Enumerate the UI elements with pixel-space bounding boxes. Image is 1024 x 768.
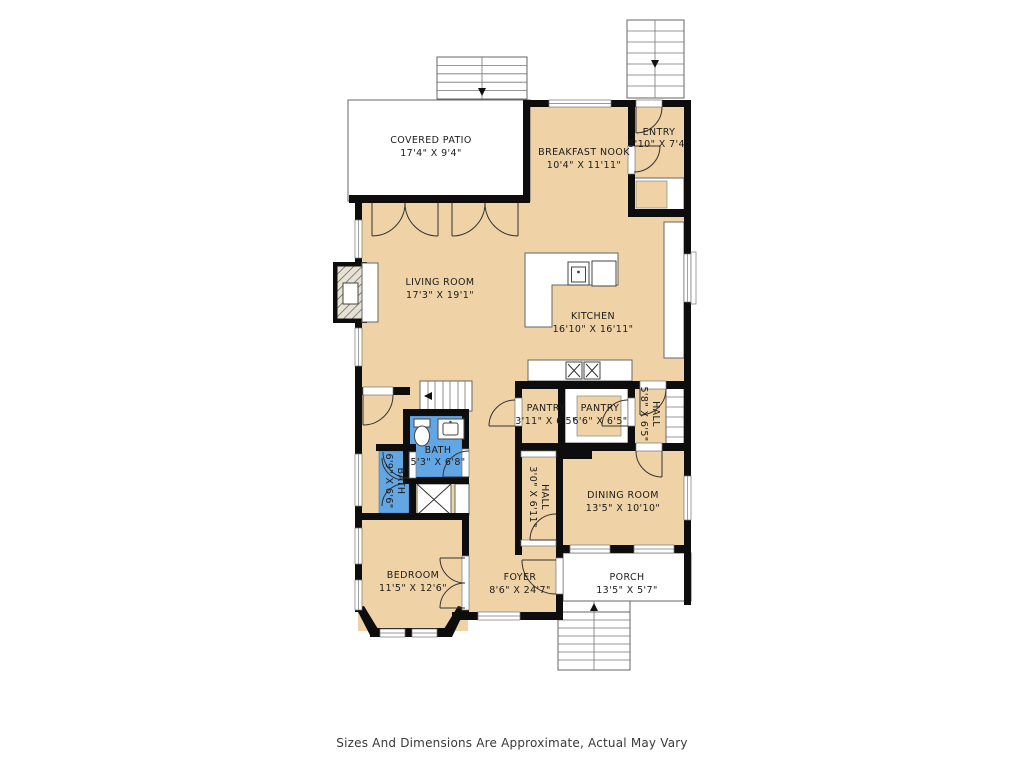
cased-opening [521, 451, 556, 457]
door-opening [363, 387, 393, 395]
hall-upper-dims: 5'8" X 6'5" [638, 386, 649, 441]
patio-stairs [437, 57, 527, 99]
floor-plan-drawing: COVERED PATIO 17'4" X 9'4" BREAKFAST NOO… [0, 0, 1024, 768]
cased-opening [521, 540, 556, 546]
dining-room-dims: 13'5" X 10'10" [586, 503, 660, 514]
window [684, 476, 691, 520]
sink-vanity-icon [438, 419, 464, 439]
entry-closet-shelf [636, 181, 667, 208]
interior-stairs [420, 381, 472, 411]
foyer-label: FOYER [504, 572, 537, 583]
door-opening [628, 398, 635, 426]
dining-room-label: DINING ROOM [587, 490, 659, 501]
window [412, 629, 437, 637]
window [684, 252, 696, 304]
kitchen-side-counter [664, 222, 684, 358]
pantry-left-label: PANTRY [527, 403, 566, 414]
wall-oven-icon [592, 261, 616, 286]
faucet-icon [577, 271, 580, 274]
entry-dims: 5'10" X 7'4" [628, 139, 690, 150]
fireplace-icon [333, 262, 378, 323]
hall-upper-label: HALL [650, 401, 661, 427]
foyer-dims: 8'6" X 24'7" [489, 585, 551, 596]
front-door-opening [556, 558, 563, 594]
small-closet [455, 484, 469, 515]
bedroom-label: BEDROOM [387, 570, 439, 581]
covered-patio-label: COVERED PATIO [390, 135, 472, 146]
porch-label: PORCH [609, 572, 644, 583]
disclaimer-caption: Sizes And Dimensions Are Approximate, Ac… [336, 736, 687, 750]
covered-patio-dims: 17'4" X 9'4" [400, 148, 462, 159]
floor-plan-page: COVERED PATIO 17'4" X 9'4" BREAKFAST NOO… [0, 0, 1024, 768]
window [355, 328, 362, 366]
porch-structure [558, 553, 691, 670]
window [355, 220, 362, 258]
living-room-dims: 17'3" X 19'1" [406, 290, 474, 301]
kitchen-sink-basin [572, 267, 586, 282]
bath-second-dims: 6'9" X 6'6" [383, 453, 394, 508]
entry-door-opening [636, 100, 662, 107]
window [549, 100, 611, 107]
kitchen-dims: 16'10" X 16'11" [553, 324, 634, 335]
porch-dims: 13'5" X 5'7" [596, 585, 658, 596]
kitchen-label: KITCHEN [571, 311, 615, 322]
bedroom-dims: 11'5" X 12'6" [379, 583, 447, 594]
door-opening [636, 443, 662, 451]
window [634, 545, 674, 553]
pantry-left-dims: 3'11" X 6'5" [515, 416, 577, 427]
window [570, 545, 610, 553]
hall-lower-dims: 3'0" X 6'11" [527, 466, 538, 528]
toilet-icon [414, 419, 430, 446]
entry-stairs [627, 20, 684, 98]
pantry-right-dims: 6'6" X 6'5" [572, 416, 627, 427]
breakfast-nook-dims: 10'4" X 11'11" [547, 160, 621, 171]
pantry-right-label: PANTRY [581, 403, 620, 414]
hall-lower-label: HALL [539, 484, 550, 510]
window [355, 528, 362, 564]
side-stairs [666, 387, 684, 444]
entry-label: ENTRY [643, 127, 676, 138]
window [380, 629, 405, 637]
window [355, 580, 362, 610]
breakfast-nook-label: BREAKFAST NOOK [538, 147, 630, 158]
bath-main-label: BATH [425, 445, 452, 456]
bath-main-dims: 5'3" X 6'8" [410, 457, 465, 468]
living-room-label: LIVING ROOM [405, 277, 474, 288]
window [478, 612, 520, 620]
window [355, 454, 362, 506]
bath-second-label: BATH [395, 468, 406, 495]
